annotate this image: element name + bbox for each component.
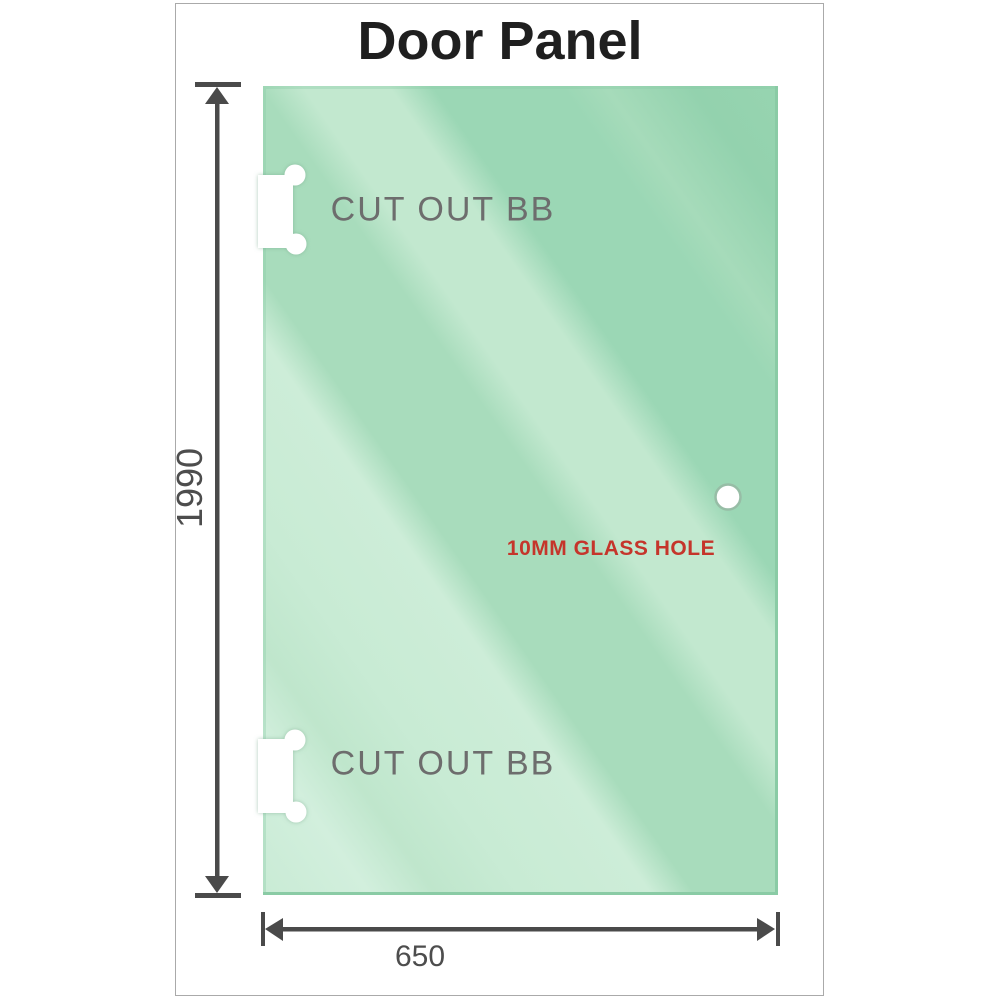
dimension-graphics [0, 0, 1000, 1000]
cutout-bottom-shape [258, 730, 307, 823]
width-dim-arrow-right [757, 918, 775, 941]
width-dim-arrow-left [265, 918, 283, 941]
width-dimension-line [261, 912, 780, 946]
height-dim-arrow-up [205, 87, 229, 104]
width-dimension-value: 650 [395, 940, 445, 974]
height-dim-bottom-tick [195, 893, 241, 898]
drawing-canvas: Door Panel [0, 0, 1000, 1000]
cutout-label-top: CUT OUT BB [331, 191, 556, 230]
height-dim-top-tick [195, 82, 241, 87]
glass-hole-label: 10MM GLASS HOLE [507, 537, 715, 561]
width-dim-left-tick [261, 912, 265, 946]
cutout-label-bottom: CUT OUT BB [331, 745, 556, 784]
width-dim-right-tick [776, 912, 780, 946]
height-dim-arrow-down [205, 876, 229, 893]
width-dim-shaft [278, 927, 762, 932]
height-dimension-value: 1990 [169, 448, 211, 528]
glass-hole [716, 485, 741, 510]
height-dim-shaft [215, 98, 220, 884]
cutout-top-shape [258, 165, 307, 255]
